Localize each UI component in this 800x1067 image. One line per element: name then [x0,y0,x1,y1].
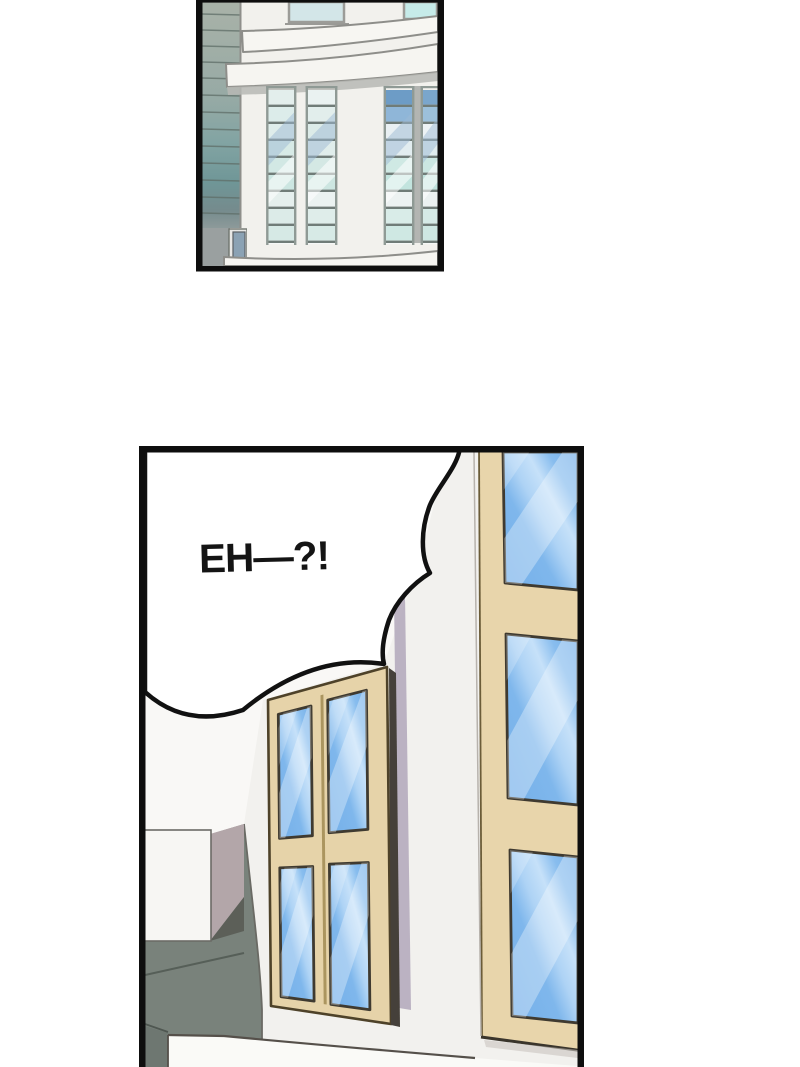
svg-text:EH—?!: EH—?! [198,532,329,581]
